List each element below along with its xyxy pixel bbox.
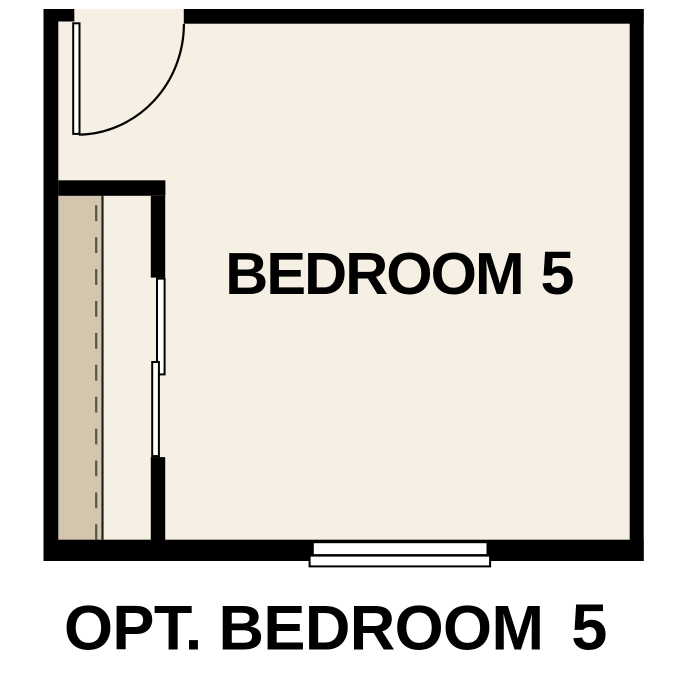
svg-text:5: 5 (541, 239, 575, 307)
svg-text:OPT. BEDROOM: OPT. BEDROOM (64, 593, 543, 663)
svg-text:BEDROOM: BEDROOM (225, 240, 522, 307)
svg-text:5: 5 (571, 591, 607, 664)
